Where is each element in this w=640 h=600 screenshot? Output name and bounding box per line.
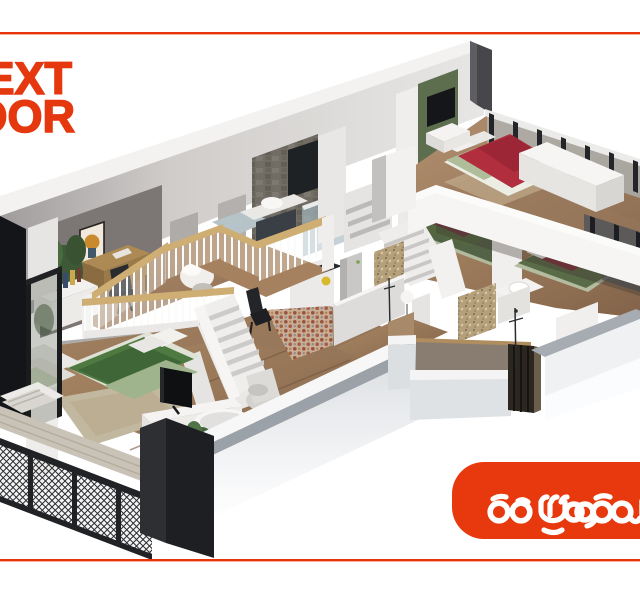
- svg-text:DOOR: DOOR: [0, 91, 75, 142]
